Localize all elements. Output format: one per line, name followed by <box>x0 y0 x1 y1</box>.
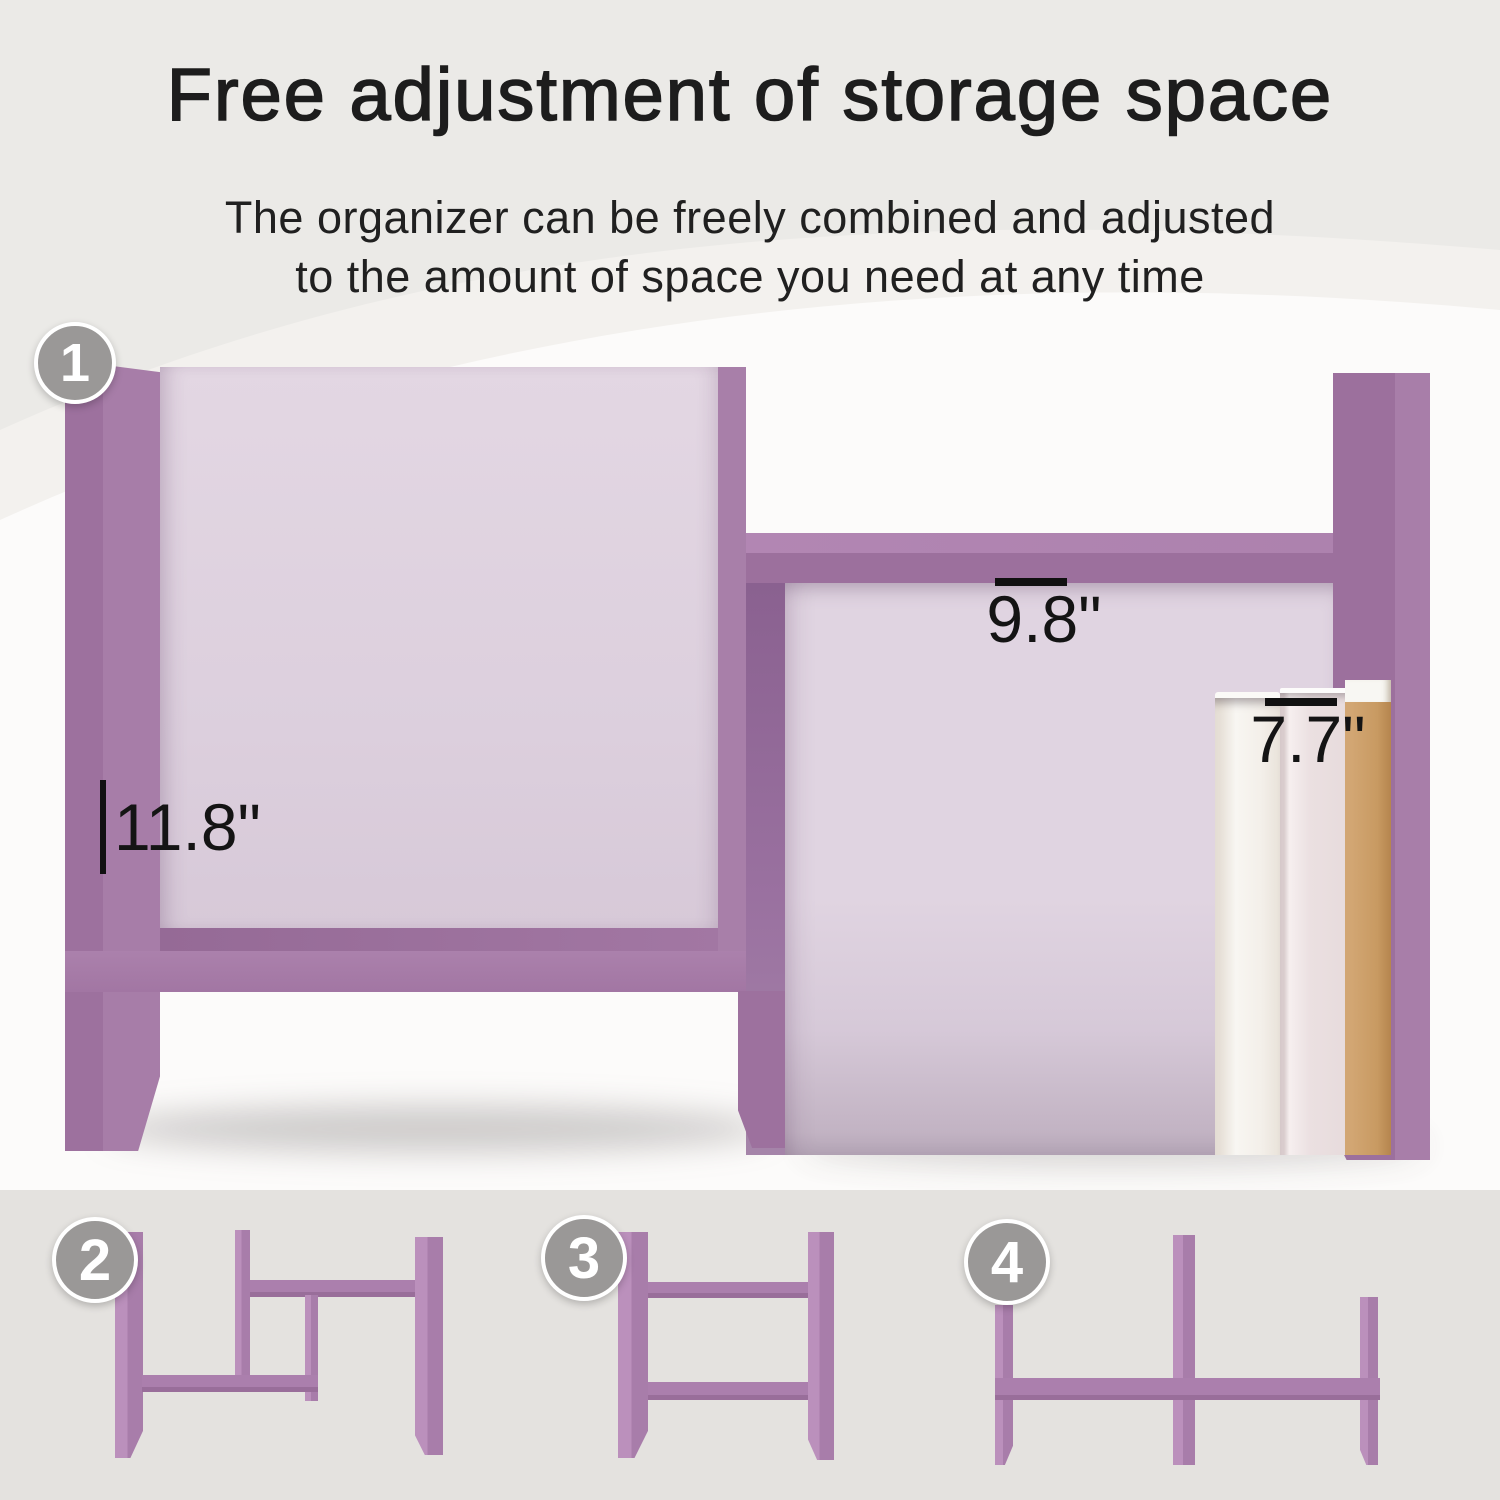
organizer-left-shelf-surface <box>160 928 718 951</box>
config-2-badge: 2 <box>52 1217 138 1303</box>
dimension-tick-right <box>100 780 106 874</box>
dimension-height: 9.8" <box>995 578 1067 1152</box>
subtitle-line-1: The organizer can be freely combined and… <box>225 192 1275 243</box>
config-2-right-board <box>415 1237 443 1455</box>
config-2-top-board <box>235 1230 250 1387</box>
config-1-badge: 1 <box>34 322 116 404</box>
configurations-footer <box>0 1190 1500 1500</box>
config-3-badge: 3 <box>541 1215 627 1301</box>
dimension-width: 11.8" <box>100 780 732 874</box>
config-3-right-board <box>808 1232 834 1460</box>
dimension-book-height: 7.7" <box>1265 698 1337 1152</box>
product-infographic: Free adjustment of storage space The org… <box>0 0 1500 1500</box>
dimension-width-label: 11.8" <box>100 794 275 860</box>
organizer-middle-leg <box>738 991 785 1148</box>
config-4-middle-board <box>1173 1235 1195 1465</box>
config-3-top-shelf <box>648 1282 808 1298</box>
dimension-book-height-label: 7.7" <box>1250 698 1365 780</box>
subtitle-line-2: to the amount of space you need at any t… <box>295 251 1205 302</box>
config-4-horizontal-board <box>995 1378 1380 1400</box>
dimension-tick-bottom <box>1265 698 1337 706</box>
config-2-upper-shelf <box>250 1280 416 1297</box>
page-title: Free adjustment of storage space <box>0 52 1500 137</box>
config-3-bottom-shelf <box>648 1382 808 1400</box>
config-2-lower-shelf <box>142 1375 318 1392</box>
page-subtitle: The organizer can be freely combined and… <box>0 188 1500 307</box>
organizer-left-bottom-board <box>65 951 785 992</box>
organizer-left-panel <box>65 365 160 1151</box>
floor-shadow-left <box>105 1106 770 1152</box>
config-4-badge: 4 <box>964 1219 1050 1305</box>
organizer-right-shelf-top <box>746 533 1430 553</box>
dimension-height-label: 9.8" <box>986 578 1101 660</box>
dimension-tick-bottom <box>995 578 1067 586</box>
